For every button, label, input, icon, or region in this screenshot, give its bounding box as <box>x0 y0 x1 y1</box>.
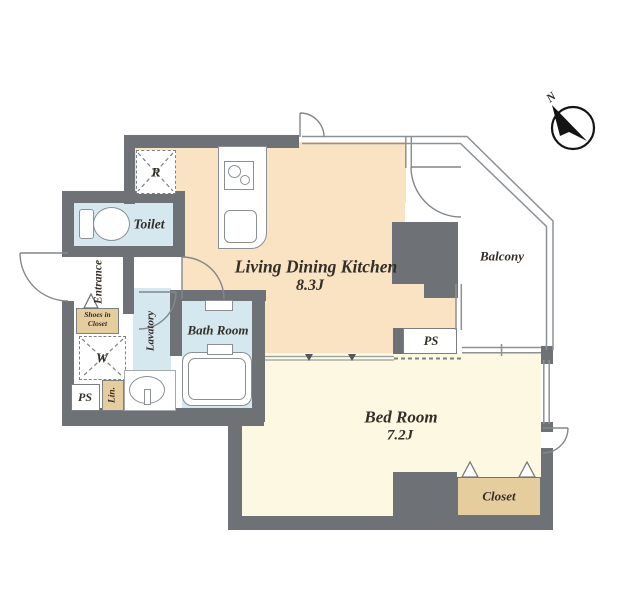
linen-label: Lin. <box>108 387 118 403</box>
window-lines <box>302 137 553 425</box>
closet-label: Closet <box>482 490 515 503</box>
ldk-door <box>182 257 224 299</box>
top-service-door <box>300 113 324 137</box>
shoe-closet-label-line1: Shoes in <box>76 310 119 319</box>
ldk-label: Living Dining Kitchen <box>235 258 397 276</box>
balcony-door <box>411 167 461 217</box>
pipe-space-balcony-label: PS <box>424 335 439 348</box>
ldk-area-label: 8.3J <box>296 278 324 294</box>
pipe-space-label: PS <box>78 391 92 403</box>
plan-linework <box>0 0 621 612</box>
bedroom-area-label: 7.2J <box>387 429 413 444</box>
entrance-door <box>20 253 68 301</box>
washer-label: W <box>96 351 108 365</box>
shoe-closet-label: Shoes in Closet <box>76 310 119 329</box>
bathroom-label: Bath Room <box>187 324 248 337</box>
refrigerator-label: R <box>152 166 161 179</box>
lavatory-label: Lavatory <box>146 311 157 351</box>
bedroom-side-door <box>543 428 568 453</box>
shoe-closet-label-line2: Closet <box>76 319 119 328</box>
entrance-label: Entrance <box>93 260 105 304</box>
floor-plan: Living Dining Kitchen 8.3J Bed Room 7.2J… <box>0 0 621 612</box>
balcony-label: Balcony <box>480 250 524 263</box>
toilet-label: Toilet <box>133 217 164 231</box>
bedroom-label: Bed Room <box>364 409 437 426</box>
north-compass <box>552 105 594 149</box>
closet-fold-marks <box>462 462 535 477</box>
sliding-door <box>265 354 462 361</box>
